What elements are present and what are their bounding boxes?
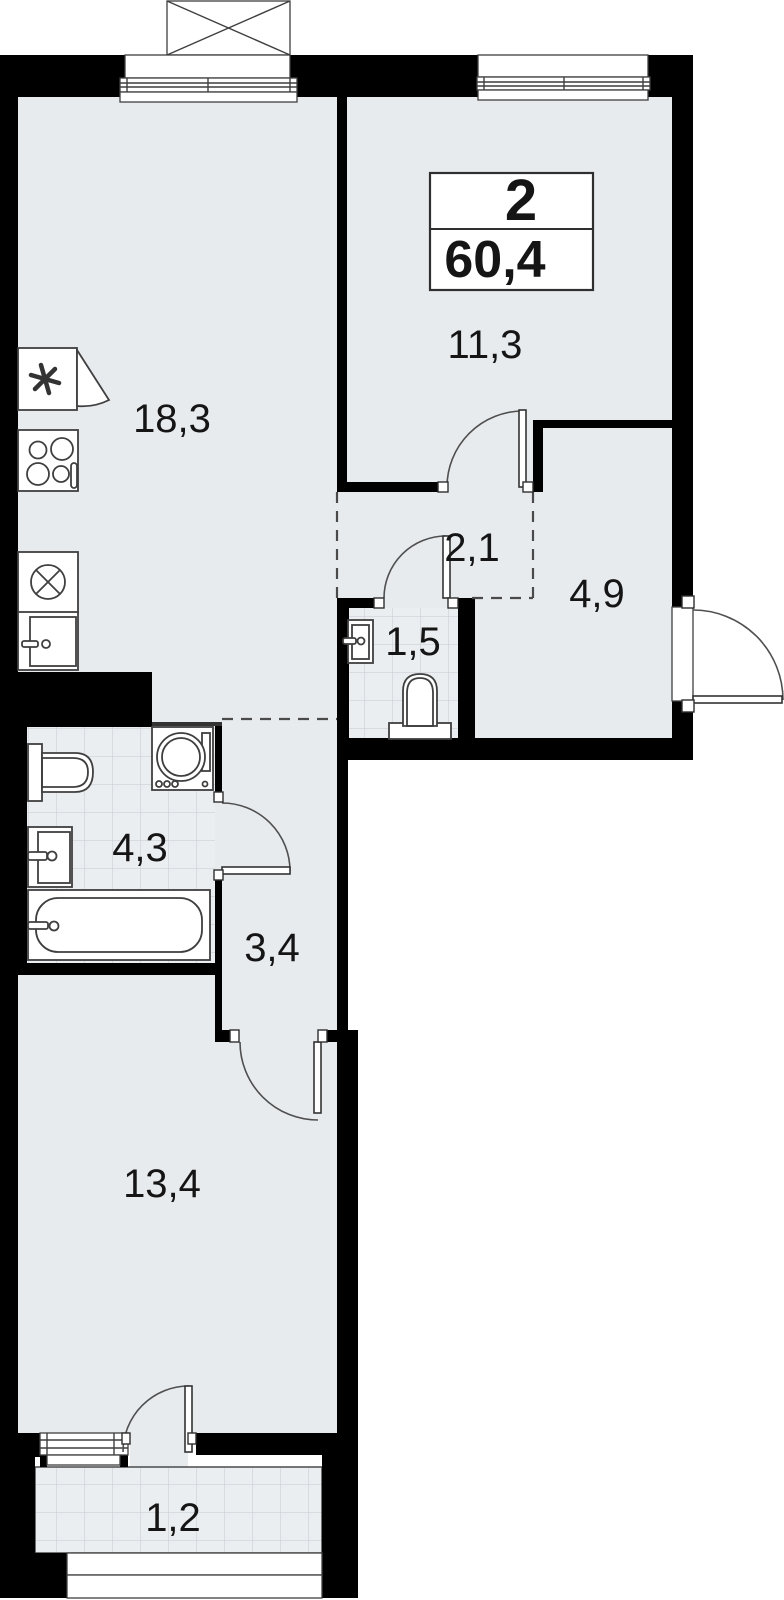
kitchen-cabinet-icon: [18, 612, 78, 670]
wc-sink-icon: [343, 620, 373, 663]
entry-door: [672, 596, 783, 712]
room-count-value: 2: [505, 168, 537, 233]
bathroom-sink-icon: [28, 827, 72, 887]
cooktop-icon: [18, 430, 78, 491]
kitchen-sink-icon: [18, 552, 78, 613]
area-label-wc: 1,5: [385, 620, 441, 664]
floor-plan: 2 60,4 18,3 11,3 2,1 4,9 1,5 4,3 3,4 13,…: [0, 0, 784, 1600]
balcony-railing: [67, 1553, 322, 1598]
area-label-bathroom: 4,3: [112, 826, 168, 870]
area-label-entrance-hall: 4,9: [569, 572, 625, 616]
area-label-kitchen-living-room: 18,3: [133, 397, 211, 441]
area-label-living-room: 13,4: [123, 1162, 201, 1206]
area-label-corridor: 3,4: [244, 926, 300, 970]
plan-info-box: 2 60,4: [430, 168, 593, 290]
total-area-value: 60,4: [444, 231, 545, 289]
area-label-hallway: 2,1: [444, 526, 500, 570]
washing-machine-icon: [152, 727, 213, 790]
area-label-balcony: 1,2: [145, 1496, 201, 1540]
bathtub-icon: [28, 890, 210, 960]
area-label-bedroom: 11,3: [448, 323, 523, 367]
bedroom-window: [477, 55, 650, 100]
kitchen-window: [120, 1, 297, 102]
living-room-window: [40, 1433, 128, 1465]
